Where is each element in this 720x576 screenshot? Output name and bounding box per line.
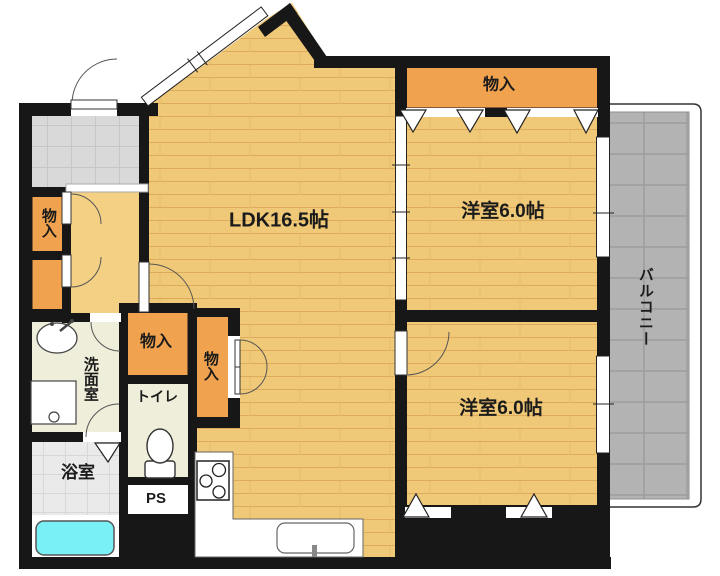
wall-ps-bottom	[119, 514, 196, 569]
genkan-step	[66, 184, 148, 192]
wall-partition-top	[395, 56, 407, 118]
room-label-balcony: バルコニー	[637, 267, 653, 347]
wall-blocka-top	[119, 303, 196, 313]
washing-machine-icon	[31, 381, 76, 424]
label-closet-hall-b: 物入	[202, 351, 218, 381]
room-label-washroom: 洗面室	[82, 357, 98, 402]
floor-plan-drawing	[0, 0, 720, 576]
room-label-toilet: トイレ	[136, 390, 178, 405]
hall-floor	[62, 185, 149, 323]
bathtub-icon	[36, 521, 114, 555]
room-label-bedroom2: 洋室6.0帖	[459, 399, 542, 419]
closet-bedroom1-opening-post	[485, 108, 507, 117]
entry-door	[71, 59, 117, 116]
stove-icon	[197, 461, 229, 500]
label-closet-bedroom: 物入	[483, 78, 515, 95]
floor-plan: LDK16.5帖 洋室6.0帖 洋室6.0帖 バルコニー 物入 物入 物入 物入…	[0, 0, 720, 576]
room-label-pipe-space: PS	[146, 491, 166, 507]
wall-blocka-bottom	[119, 375, 196, 384]
label-closet-hall-a: 物入	[140, 335, 172, 352]
wall-entry-left	[19, 103, 73, 116]
sliding-partition	[396, 116, 407, 300]
shoe-cabinet	[32, 258, 64, 311]
wall-left-outer	[19, 103, 32, 569]
wall-top	[314, 56, 610, 68]
room-label-ldk: LDK16.5帖	[229, 211, 329, 232]
label-closet-entry: 物入	[40, 208, 56, 238]
wall-bedroom-divider	[395, 310, 610, 322]
toilet-bowl	[147, 429, 173, 463]
wall-entry-right	[116, 103, 158, 116]
bathroom-fixtures	[36, 521, 114, 555]
room-label-bedroom1: 洋室6.0帖	[461, 202, 544, 222]
genkan-floor	[30, 106, 148, 192]
window-bedroom1	[597, 137, 610, 257]
kitchen-sink-icon	[277, 523, 354, 557]
room-label-bathroom: 浴室	[61, 464, 95, 482]
toilet-fixture	[145, 429, 175, 478]
